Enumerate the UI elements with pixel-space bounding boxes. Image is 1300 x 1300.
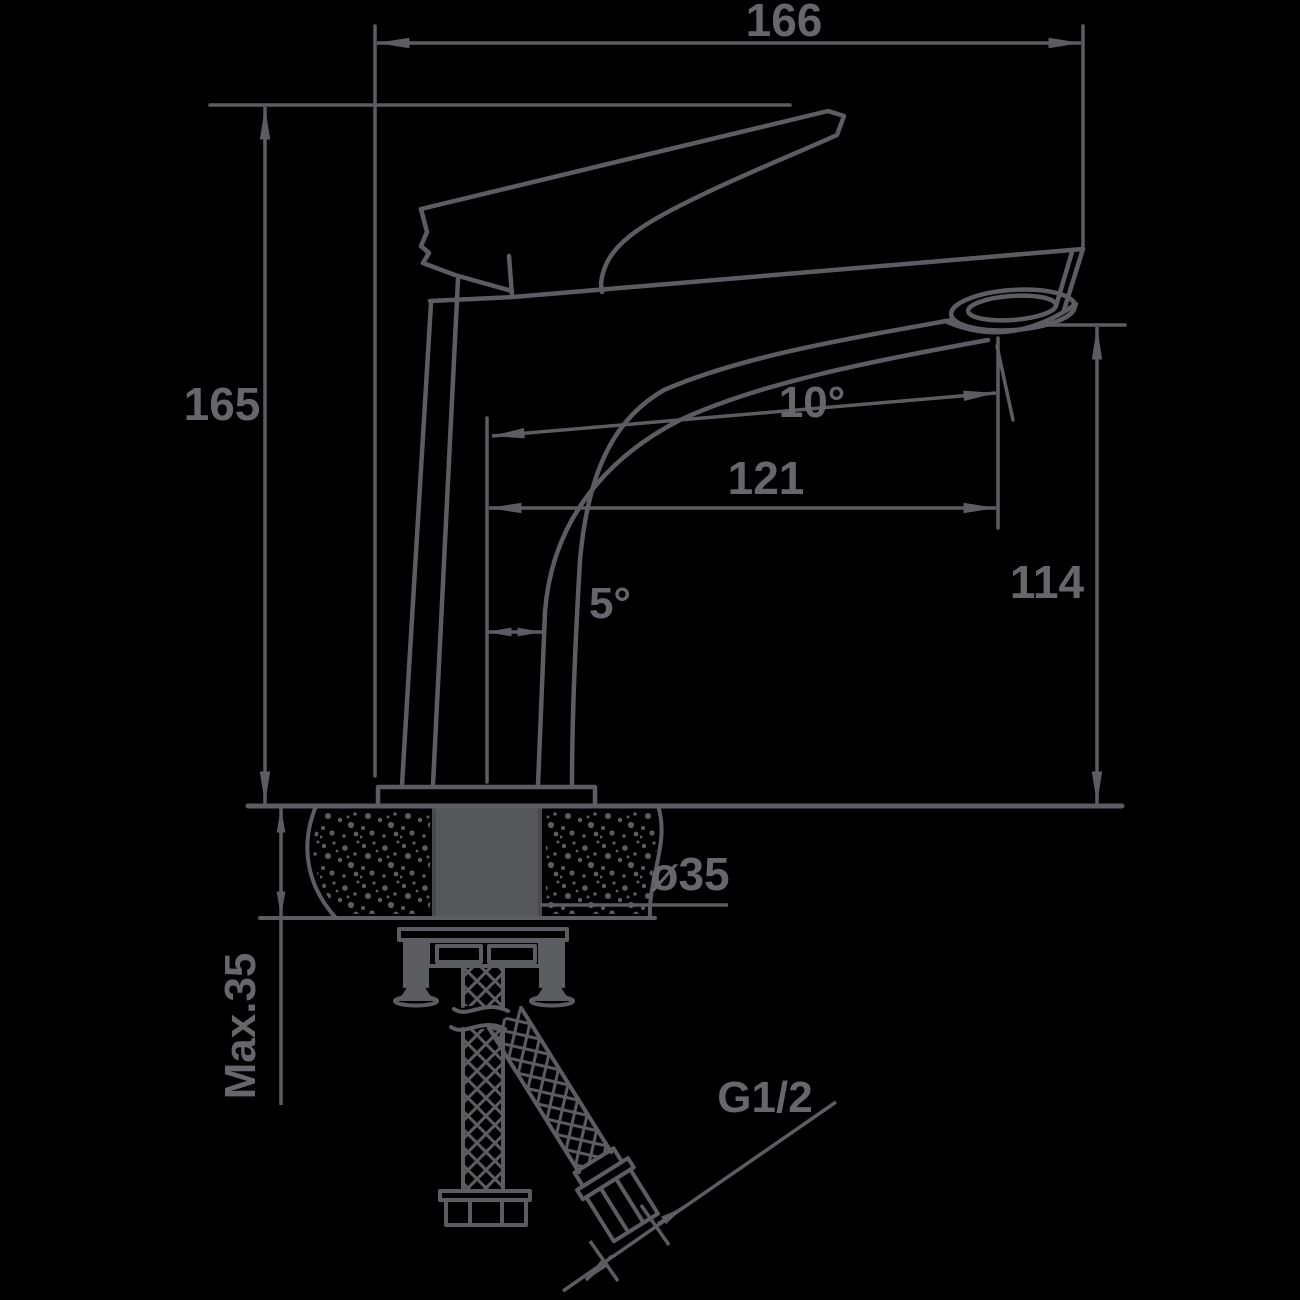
aerator-inner-ring — [967, 293, 1056, 323]
label-overall-length: 166 — [746, 0, 823, 46]
label-thread-size: G1/2 — [717, 1073, 812, 1122]
body-right-inner — [538, 340, 988, 785]
lever-collar-edge — [509, 256, 512, 296]
nut-bar-window-left — [437, 946, 481, 962]
leader-arrow-g12-upper — [658, 1207, 684, 1224]
countertop-stipple-right — [546, 812, 657, 914]
hose-nut-facets — [470, 1200, 502, 1225]
dimension-lines — [265, 43, 1097, 1291]
hose-nut-body — [446, 1200, 526, 1225]
mounting-hardware — [395, 929, 661, 1243]
lever-handle — [421, 111, 844, 292]
label-max-deck-thickness: Max.35 — [216, 953, 265, 1100]
body-left-outer — [402, 303, 431, 785]
technical-drawing-page: 166 165 10° 121 114 5° ø35 Max.35 G1/2 — [0, 0, 1300, 1300]
mounting-stud-right — [539, 940, 565, 988]
base-plate — [378, 787, 595, 806]
label-spout-angle: 10° — [779, 378, 846, 427]
nut-bar-window-right — [489, 946, 535, 962]
label-hole-diameter: ø35 — [650, 848, 729, 900]
mounting-washer — [399, 929, 567, 940]
dimension-labels: 166 165 10° 121 114 5° ø35 Max.35 G1/2 — [184, 0, 1085, 1122]
countertop-stipple-left — [313, 812, 430, 914]
diagonal-hose-nut — [586, 1170, 658, 1242]
leader-tick-g12-lower — [590, 1241, 618, 1281]
label-body-tilt-angle: 5° — [589, 579, 631, 628]
diagonal-nut-facets — [601, 1179, 644, 1233]
label-spout-reach: 121 — [728, 452, 805, 504]
lever-base-slant — [423, 263, 512, 291]
faucet-dimensional-drawing: 166 165 10° 121 114 5° ø35 Max.35 G1/2 — [0, 0, 1300, 1300]
mounting-stud-left — [403, 940, 429, 988]
hose-diagonal — [480, 1002, 662, 1243]
extension-lines — [210, 26, 1125, 918]
label-outlet-height: 114 — [1010, 556, 1085, 608]
label-overall-height: 165 — [184, 378, 261, 430]
lever-front-edge — [421, 209, 429, 263]
dim-line-10deg — [492, 393, 996, 436]
faucet-shank-section — [432, 806, 542, 918]
body-left-inner — [433, 279, 458, 785]
